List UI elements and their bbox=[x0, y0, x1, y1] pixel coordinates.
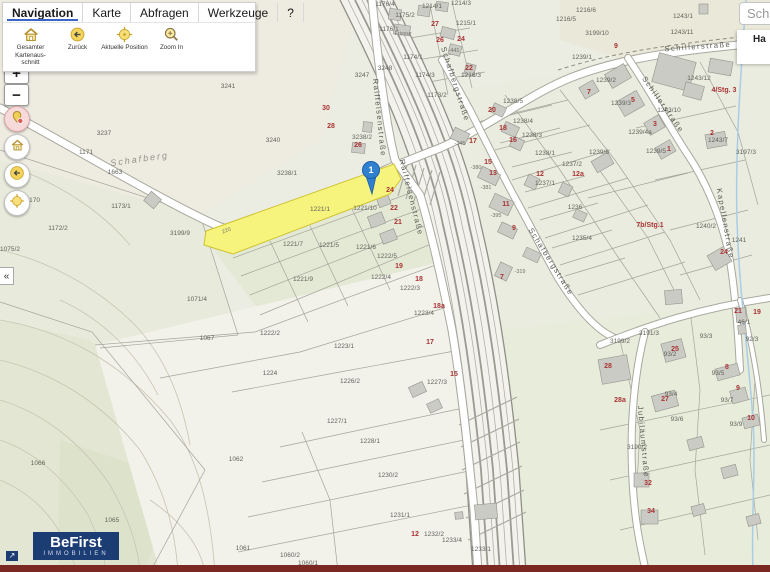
parcel-number-label: 1062 bbox=[229, 456, 244, 463]
parcel-number-label: 3238/2 bbox=[352, 134, 372, 141]
parcel-number-label: 1238/3 bbox=[522, 132, 542, 139]
parcel-number-label: 3238/1 bbox=[277, 170, 297, 177]
parcel-number-label: 1228/1 bbox=[360, 438, 380, 445]
parcel-number-label: 46/1 bbox=[738, 319, 751, 326]
parcel-number-label: -345 bbox=[454, 141, 465, 147]
building bbox=[699, 4, 708, 14]
house-number-label: 34 bbox=[647, 508, 655, 515]
parcel-number-label: 1239/6 bbox=[589, 149, 609, 156]
parcel-number-label: 1238/1 bbox=[535, 150, 555, 157]
house-number-label: 19 bbox=[753, 309, 761, 316]
zoom-out-button[interactable]: − bbox=[4, 84, 29, 106]
parcel-number-label: 93/9 bbox=[730, 421, 743, 428]
parcel-number-label: 1222/4 bbox=[371, 274, 391, 281]
bottom-status-bar bbox=[0, 565, 770, 572]
parcel-number-label: 1222/5 bbox=[377, 253, 397, 260]
back-icon bbox=[9, 165, 25, 186]
parcel-number-label: 1221/9 bbox=[293, 276, 313, 283]
parcel-number-label: 3191/3 bbox=[639, 330, 659, 337]
house-number-label: 27 bbox=[431, 21, 439, 28]
building bbox=[738, 325, 747, 335]
house-number-label: 12 bbox=[411, 531, 419, 538]
parcel-number-label: 92/3 bbox=[746, 336, 759, 343]
house-number-label: 19 bbox=[395, 263, 403, 270]
house-number-label: 32 bbox=[644, 480, 652, 487]
parcel-number-label: 1067 bbox=[200, 335, 215, 342]
building bbox=[455, 512, 464, 520]
house-number-label: 1 bbox=[667, 146, 671, 153]
parcel-number-label: 1233/1 bbox=[471, 546, 491, 553]
parcel-number-label: 1222/3 bbox=[400, 285, 420, 292]
house-number-label: 7 bbox=[587, 89, 591, 96]
tool-label: Zoom In bbox=[160, 44, 183, 52]
parcel-number-label: 1175/2 bbox=[395, 12, 415, 19]
tool-back[interactable]: Zurück bbox=[54, 26, 101, 67]
geolocate-button[interactable] bbox=[4, 106, 30, 132]
building bbox=[598, 355, 631, 385]
parcel-number-label: 1230/2 bbox=[378, 472, 398, 479]
tool-current-position[interactable]: Aktuelle Position bbox=[101, 26, 148, 67]
house-number-label: 11 bbox=[502, 201, 510, 208]
tool-zoom-in[interactable]: Zoom In bbox=[148, 26, 195, 67]
parcel-number-label: 1075/2 bbox=[0, 246, 20, 253]
parcel-number-label: 1239/4a bbox=[628, 129, 652, 136]
house-number-label: 8 bbox=[725, 364, 729, 371]
position-icon bbox=[116, 26, 133, 43]
parcel-number-label: 1221/5 bbox=[319, 242, 339, 249]
parcel-number-label: 1239/1 bbox=[572, 54, 592, 61]
parcel-number-label: 1071/4 bbox=[187, 296, 207, 303]
external-link-button[interactable]: ↗ bbox=[6, 551, 18, 561]
map-canvas[interactable]: 324132403238/13238/23237117116631173/111… bbox=[0, 0, 770, 572]
parcel-number-label: 1237/2 bbox=[562, 161, 582, 168]
house-number-label: 15 bbox=[450, 371, 458, 378]
parcel-number-label: 93/5 bbox=[712, 370, 725, 377]
parcel-number-label: 3248 bbox=[378, 65, 393, 72]
parcel-number-label: 1239/5 bbox=[646, 148, 666, 155]
side-panel: Ha bbox=[737, 30, 770, 64]
parcel-number-label: 1243/12 bbox=[687, 75, 711, 82]
house-number-label: 24 bbox=[457, 36, 465, 43]
house-number-label: 2 bbox=[710, 130, 714, 137]
marker-label: 1 bbox=[368, 165, 373, 175]
house-number-label: 4/Stg. 3 bbox=[712, 87, 737, 94]
home-icon bbox=[10, 138, 25, 157]
logo-line2: IMMOBILIEN bbox=[43, 551, 108, 557]
parcel-number-label: 1214/3 bbox=[451, 0, 471, 7]
parcel-number-label: -380 bbox=[470, 165, 481, 171]
house-number-label: 20 bbox=[488, 107, 496, 114]
position-button[interactable] bbox=[4, 190, 30, 216]
building bbox=[664, 289, 682, 304]
parcel-number-label: -319 bbox=[514, 269, 525, 275]
parcel-number-label: 1238/5 bbox=[503, 98, 523, 105]
tool-label: Gesamter Kartenaus- schnitt bbox=[7, 44, 54, 67]
parcel-number-label: 1215/1 bbox=[456, 20, 476, 27]
zoom-in-icon bbox=[163, 26, 180, 43]
parcel-number-label: 3240 bbox=[266, 137, 281, 144]
house-number-label: 3 bbox=[653, 121, 657, 128]
parcel-number-label: 1235/4 bbox=[572, 235, 592, 242]
parcel-number-label: 1221/1 bbox=[310, 206, 330, 213]
house-number-label: 17 bbox=[469, 138, 477, 145]
gis-application-window: 324132403238/13238/23237117116631173/111… bbox=[0, 0, 770, 572]
parcel-number-label: 3237 bbox=[97, 130, 112, 137]
parcel-number-label: 1172/2 bbox=[48, 225, 68, 232]
parcel-number-label: 1227/3 bbox=[427, 379, 447, 386]
parcel-number-label: 1231/1 bbox=[390, 512, 410, 519]
menu-panel: Navigation Karte Abfragen Werkzeuge ? Ge… bbox=[2, 2, 256, 72]
parcel-number-label: 1174/3 bbox=[415, 72, 435, 79]
toolbar: Gesamter Kartenaus- schnitt Zurück Aktue… bbox=[3, 23, 255, 71]
house-number-label: 7 bbox=[500, 274, 504, 281]
parcel-number-label: 1239/3 bbox=[611, 100, 631, 107]
parcel-number-label: -395 bbox=[490, 213, 501, 219]
parcel-number-label: 1243/7 bbox=[708, 137, 728, 144]
parcel-number-label: 1237/1 bbox=[535, 180, 555, 187]
house-number-label: 13 bbox=[489, 170, 497, 177]
parcel-number-label: -381 bbox=[480, 185, 491, 191]
house-number-label: 5 bbox=[631, 97, 635, 104]
parcel-number-label: 1243/1 bbox=[673, 13, 693, 20]
parcel-number-label: 3199/2 bbox=[610, 338, 630, 345]
home-icon bbox=[22, 26, 40, 43]
parcel-number-label: 93/3 bbox=[700, 333, 713, 340]
back-icon bbox=[69, 26, 86, 43]
menu-bar: Navigation Karte Abfragen Werkzeuge ? bbox=[3, 3, 255, 23]
parcel-number-label: 1065 bbox=[105, 517, 120, 524]
location-pin-icon bbox=[9, 109, 25, 130]
house-number-label: 26 bbox=[354, 142, 362, 149]
parcel-number-label: 1227/1 bbox=[327, 418, 347, 425]
parcel-number-label: 1663 bbox=[108, 169, 123, 176]
house-number-label: 9 bbox=[736, 385, 740, 392]
building bbox=[474, 503, 497, 520]
house-number-label: 10 bbox=[747, 415, 755, 422]
house-number-label: 16 bbox=[509, 137, 517, 144]
house-number-label: 22 bbox=[390, 205, 398, 212]
logo-line1: BeFirst bbox=[50, 535, 102, 550]
parcel-number-label: 1238/4 bbox=[513, 118, 533, 125]
house-number-label: 17 bbox=[426, 339, 434, 346]
parcel-number-label: 3241 bbox=[221, 83, 236, 90]
search-input[interactable]: Schn bbox=[739, 2, 770, 25]
position-icon bbox=[9, 193, 25, 214]
house-number-label: 30 bbox=[322, 105, 330, 112]
parcel-number-label: 1216/3 bbox=[461, 72, 481, 79]
parcel-number-label: 1066 bbox=[31, 460, 46, 467]
parcel-number-label: 1171 bbox=[79, 149, 93, 156]
house-number-label: 28a bbox=[614, 397, 626, 404]
parcel-number-label: 1214/1 bbox=[422, 3, 442, 10]
parcel-number-label: 1061 bbox=[236, 545, 251, 552]
parcel-number-label: 3197/3 bbox=[736, 149, 756, 156]
parcel-number-label: 1243/11 bbox=[670, 29, 693, 36]
house-number-label: 26 bbox=[436, 37, 444, 44]
house-number-label: 12a bbox=[572, 171, 584, 178]
parcel-number-label: 1216/5 bbox=[556, 16, 576, 23]
parcel-number-label: 93/7 bbox=[721, 397, 734, 404]
collapse-panel-button[interactable]: « bbox=[0, 267, 14, 285]
house-number-label: 28 bbox=[327, 123, 335, 130]
parcel-number-label: 3247 bbox=[355, 72, 370, 79]
parcel-number-label: 1226/2 bbox=[340, 378, 360, 385]
parcel-number-label: 1216/6 bbox=[576, 7, 596, 14]
menu-tab-abfragen[interactable]: Abfragen bbox=[131, 3, 199, 22]
house-number-label: 28 bbox=[604, 363, 612, 370]
parcel-number-label: Friseur bbox=[394, 31, 411, 37]
parcel-number-label: 1060/2 bbox=[280, 552, 300, 559]
parcel-number-label: 1223/4 bbox=[414, 310, 434, 317]
menu-tab-karte[interactable]: Karte bbox=[83, 3, 131, 22]
back-button[interactable] bbox=[4, 162, 30, 188]
parcel-number-label: 1221/10 bbox=[353, 205, 377, 212]
house-number-label: 25 bbox=[671, 346, 679, 353]
parcel-number-label: 1173/1 bbox=[111, 203, 131, 210]
parcel-number-label: 1221/7 bbox=[283, 241, 303, 248]
menu-tab-help[interactable]: ? bbox=[278, 3, 304, 22]
home-extent-button[interactable] bbox=[4, 134, 30, 160]
menu-tab-navigation[interactable]: Navigation bbox=[3, 3, 83, 22]
house-number-label: 9 bbox=[512, 225, 516, 232]
tool-full-extent[interactable]: Gesamter Kartenaus- schnitt bbox=[7, 26, 54, 67]
tool-label: Zurück bbox=[68, 44, 87, 52]
house-number-label: 9 bbox=[614, 43, 618, 50]
house-number-label: 18 bbox=[415, 276, 423, 283]
house-number-label: 12 bbox=[536, 171, 544, 178]
house-number-label: 15 bbox=[484, 159, 492, 166]
parcel-number-label: 1221/6 bbox=[356, 244, 376, 251]
parcel-number-label: 1224 bbox=[263, 370, 278, 377]
befirst-logo: BeFirst IMMOBILIEN bbox=[33, 532, 119, 560]
house-number-label: 27 bbox=[661, 396, 669, 403]
tool-label: Aktuelle Position bbox=[101, 44, 148, 52]
house-number-label: 24 bbox=[386, 187, 394, 194]
parcel-number-label: 93/6 bbox=[671, 416, 684, 423]
parcel-number-label: 1239/2 bbox=[596, 77, 616, 84]
house-number-label: 18a bbox=[433, 303, 445, 310]
parcel-number-label: 1222/2 bbox=[260, 330, 280, 337]
parcel-number-label: 1173/2 bbox=[427, 92, 447, 99]
house-number-label: 18 bbox=[499, 125, 507, 132]
parcel-number-label: 3199/10 bbox=[585, 30, 609, 37]
parcel-number-label: 1174/1 bbox=[403, 54, 423, 61]
parcel-number-label: 1233/4 bbox=[442, 537, 462, 544]
building bbox=[363, 122, 373, 133]
side-panel-title: Ha bbox=[753, 34, 770, 45]
parcel-number-label: 1176/4 bbox=[375, 1, 395, 8]
parcel-number-label: 1223/1 bbox=[334, 343, 354, 350]
parcel-number-label: 1240/2 bbox=[696, 223, 716, 230]
house-number-label: 21 bbox=[734, 308, 742, 315]
house-number-label: 7b/Stg.1 bbox=[636, 222, 663, 229]
house-number-label: 22 bbox=[465, 65, 473, 72]
menu-tab-werkzeuge[interactable]: Werkzeuge bbox=[199, 3, 278, 22]
house-number-label: 21 bbox=[394, 219, 402, 226]
parcel-number-label: 3199/9 bbox=[170, 230, 190, 237]
parcel-number-label: 1236 bbox=[568, 204, 583, 211]
